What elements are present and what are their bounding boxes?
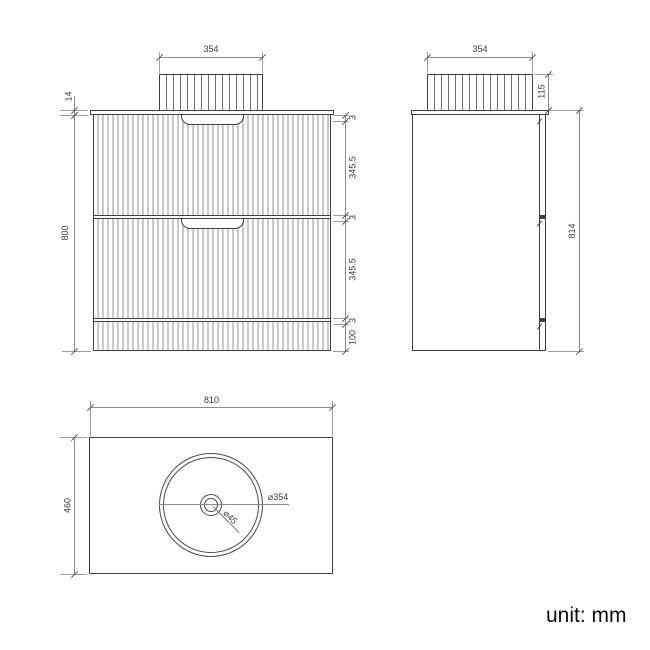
dim-line <box>90 407 333 408</box>
plan-width-label: 810 <box>90 394 333 405</box>
dim-line <box>548 74 549 111</box>
chain-label-plinth: 100 <box>346 324 359 352</box>
dim-line <box>159 57 263 58</box>
side-basin-width-label: 354 <box>427 43 533 54</box>
drawer-divider-2 <box>94 318 330 322</box>
vanity-technical-drawing: 354 14 800 3 345.5 3 345.5 3 1 <box>0 0 650 650</box>
side-drawer-gap-1 <box>539 215 546 219</box>
total-height-label: 814 <box>565 211 579 251</box>
front-basin-width-label: 354 <box>159 43 263 54</box>
drawer-handle-2 <box>181 219 244 229</box>
dim-line <box>74 115 75 351</box>
unit-note: unit: mm <box>546 604 627 628</box>
dim-line <box>579 110 580 351</box>
countertop-thickness-label: 14 <box>62 82 75 112</box>
front-basin <box>159 74 263 111</box>
side-cabinet <box>412 114 546 351</box>
front-cabinet <box>93 114 331 351</box>
dim-line <box>427 57 533 58</box>
basin-diameter-label: ⌀354 <box>260 492 296 503</box>
plan-depth-label: 460 <box>61 486 74 526</box>
chain-label-gap-top: 3 <box>346 104 359 132</box>
extension-line <box>62 351 91 352</box>
cabinet-height-label: 800 <box>58 213 72 253</box>
side-basin <box>427 74 533 111</box>
side-drawer-gap-2 <box>539 318 546 322</box>
chain-label-drawer1: 345.5 <box>346 154 359 182</box>
chain-label-gap-mid: 3 <box>346 204 359 232</box>
drawer-handle-1 <box>181 115 244 125</box>
side-drawer-strip-line <box>539 115 540 350</box>
chain-label-drawer2: 345.5 <box>346 256 359 284</box>
dim-line <box>74 437 75 575</box>
basin-height-label: 115 <box>535 78 548 106</box>
extension-line <box>535 74 553 75</box>
